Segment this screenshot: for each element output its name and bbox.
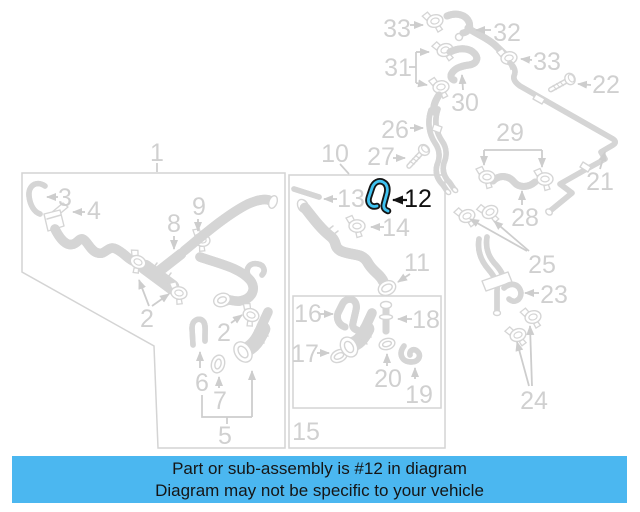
right-cluster-parts	[405, 9, 615, 350]
part-label-2a: 2	[140, 305, 154, 333]
part-label-5: 5	[218, 422, 232, 450]
part-label-25: 25	[528, 251, 556, 279]
part-label-23: 23	[540, 281, 568, 309]
part-label-16: 16	[294, 300, 322, 328]
highlighted-part-12	[368, 181, 407, 211]
part-label-27: 27	[367, 143, 395, 171]
part-label-21: 21	[586, 168, 614, 196]
part-label-3: 3	[58, 184, 72, 212]
caption-line2: Diagram may not be specific to your vehi…	[155, 480, 484, 502]
part-label-13: 13	[337, 185, 365, 213]
part-label-26: 26	[381, 116, 409, 144]
part-label-9: 9	[192, 193, 206, 221]
part-label-28: 28	[511, 204, 539, 232]
part-label-4: 4	[87, 197, 101, 225]
part-label-32: 32	[493, 19, 521, 47]
part-label-12: 12	[404, 185, 432, 213]
part-label-19: 19	[405, 381, 433, 409]
part-label-24: 24	[520, 387, 548, 415]
diagram-stage: 1348922675101312141116171820191533323133…	[0, 0, 640, 512]
part-label-14: 14	[382, 214, 410, 242]
part-labels-layer: 1348922675101312141116171820191533323133…	[58, 15, 620, 450]
part-label-20: 20	[374, 365, 402, 393]
part-label-6: 6	[195, 369, 209, 397]
part-label-18: 18	[412, 306, 440, 334]
part-label-7: 7	[213, 387, 227, 415]
caption-line1: Part or sub-assembly is #12 in diagram	[172, 458, 467, 480]
part-label-1: 1	[150, 139, 164, 167]
part-label-11: 11	[404, 249, 430, 277]
part-label-31: 31	[384, 54, 412, 82]
part-label-22: 22	[592, 71, 620, 99]
part-label-8: 8	[167, 210, 181, 238]
bolt-27	[405, 142, 432, 170]
part-label-33b: 33	[533, 48, 561, 76]
part-label-30: 30	[451, 89, 479, 117]
part-label-2b: 2	[217, 319, 231, 347]
part-label-10: 10	[321, 140, 349, 168]
parts-diagram: 1348922675101312141116171820191533323133…	[0, 0, 640, 512]
part-label-33a: 33	[383, 15, 411, 43]
box15-parts	[329, 299, 420, 365]
caption-bar: Part or sub-assembly is #12 in diagram D…	[12, 456, 627, 503]
part-label-29: 29	[496, 119, 524, 147]
part-label-15: 15	[292, 418, 320, 446]
part-label-17: 17	[291, 340, 319, 368]
